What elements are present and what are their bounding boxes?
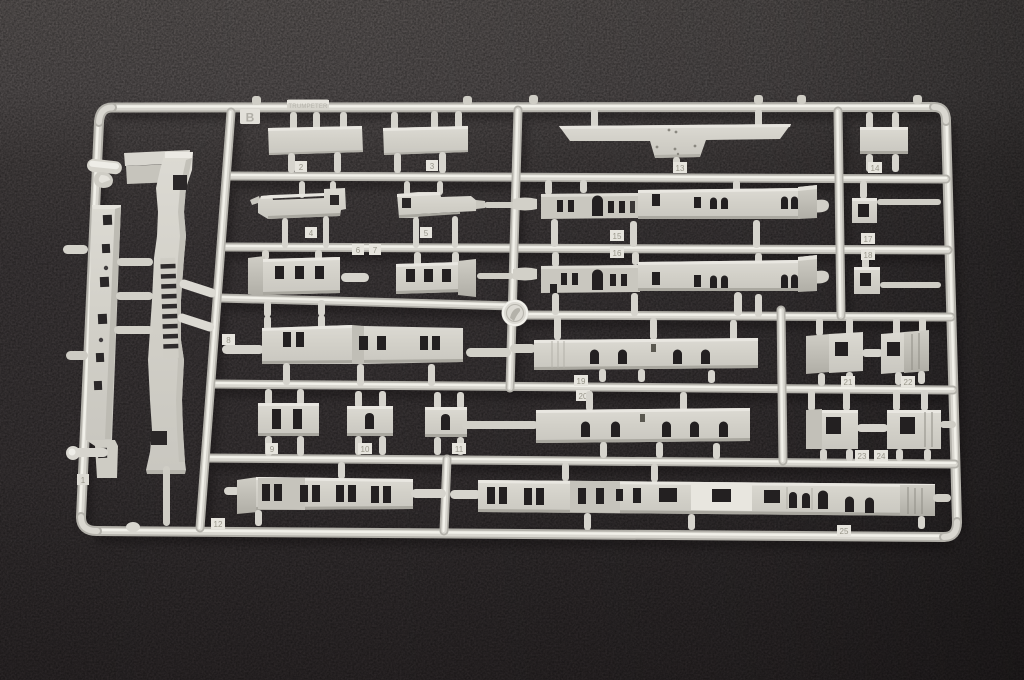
- svg-text:23: 23: [858, 452, 867, 461]
- svg-text:6: 6: [356, 246, 361, 255]
- svg-text:19: 19: [577, 377, 586, 386]
- svg-text:24: 24: [877, 452, 886, 461]
- svg-text:B: B: [246, 111, 255, 125]
- svg-text:15: 15: [613, 232, 622, 241]
- svg-text:21: 21: [844, 378, 853, 387]
- svg-text:16: 16: [613, 249, 622, 258]
- svg-text:17: 17: [864, 235, 873, 244]
- svg-text:7: 7: [373, 246, 378, 255]
- svg-text:13: 13: [676, 164, 685, 173]
- svg-text:2: 2: [299, 163, 304, 172]
- svg-text:10: 10: [361, 445, 370, 454]
- svg-text:8: 8: [226, 336, 231, 345]
- svg-text:25: 25: [840, 527, 849, 536]
- svg-text:11: 11: [455, 445, 464, 454]
- svg-text:1: 1: [81, 476, 86, 485]
- svg-text:5: 5: [424, 229, 429, 238]
- svg-text:4: 4: [309, 229, 314, 238]
- svg-text:3: 3: [430, 162, 435, 171]
- svg-text:12: 12: [214, 520, 223, 529]
- svg-text:9: 9: [270, 445, 275, 454]
- svg-text:14: 14: [871, 164, 880, 173]
- svg-text:TRUMPETER: TRUMPETER: [288, 104, 328, 110]
- svg-text:18: 18: [864, 251, 873, 260]
- svg-text:22: 22: [904, 378, 913, 387]
